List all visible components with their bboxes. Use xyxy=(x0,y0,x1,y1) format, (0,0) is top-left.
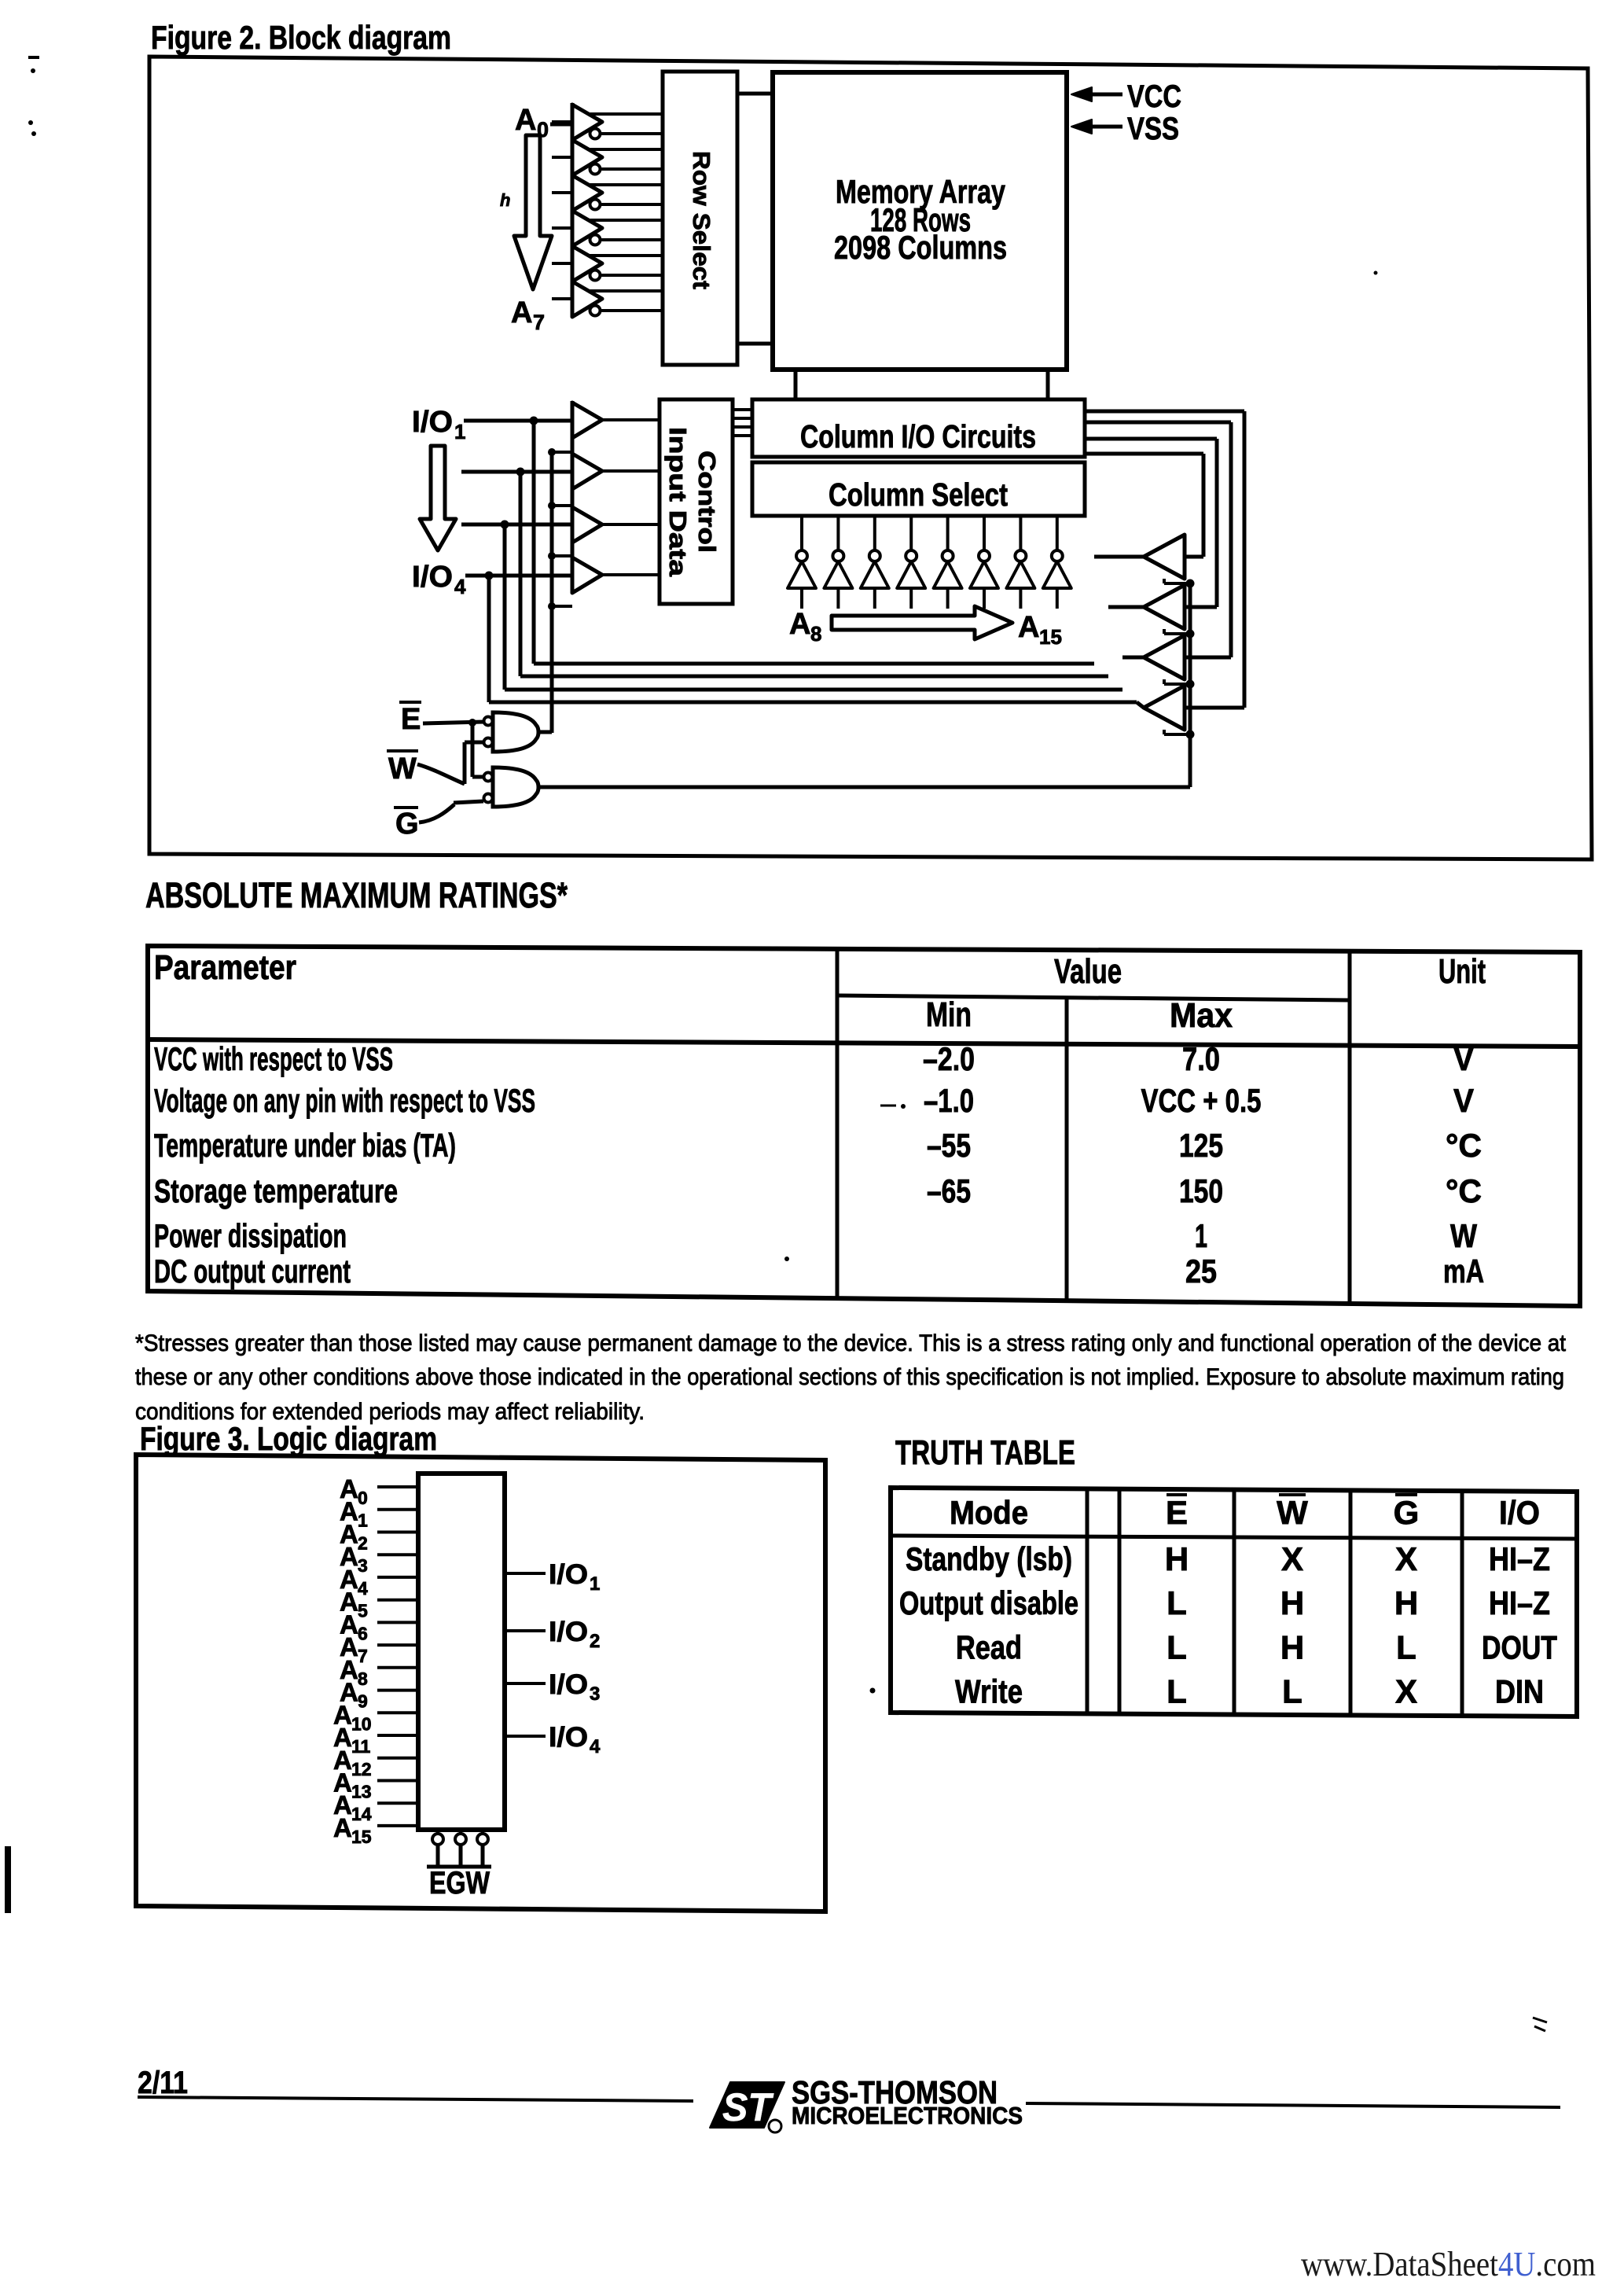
svg-text:°C: °C xyxy=(1446,1172,1482,1209)
svg-text:150: 150 xyxy=(1179,1172,1223,1209)
svg-text:10: 10 xyxy=(351,1713,372,1734)
svg-text:G: G xyxy=(395,808,419,841)
svg-text:W: W xyxy=(1450,1217,1477,1254)
svg-text:h: h xyxy=(500,190,510,210)
svg-text:L: L xyxy=(1167,1584,1187,1621)
svg-text:4: 4 xyxy=(590,1736,601,1757)
svg-text:Figure 3. Logic diagram: Figure 3. Logic diagram xyxy=(140,1420,437,1457)
svg-text:7: 7 xyxy=(358,1646,368,1666)
svg-text:I/O: I/O xyxy=(549,1559,588,1590)
svg-text:E: E xyxy=(401,703,421,736)
svg-text:Output disable: Output disable xyxy=(899,1584,1078,1621)
svg-text:I/O: I/O xyxy=(412,561,453,594)
svg-text:2/11: 2/11 xyxy=(138,2066,188,2100)
svg-text:ABSOLUTE MAXIMUM RATINGS*: ABSOLUTE MAXIMUM RATINGS* xyxy=(145,875,568,915)
svg-text:W: W xyxy=(388,752,417,786)
svg-text:EGW: EGW xyxy=(429,1866,490,1900)
svg-text:HI–Z: HI–Z xyxy=(1489,1540,1550,1577)
svg-text:2: 2 xyxy=(590,1631,600,1652)
svg-text:A: A xyxy=(511,296,532,329)
svg-text:Column I/O Circuits: Column I/O Circuits xyxy=(800,418,1036,454)
svg-text:Mode: Mode xyxy=(950,1494,1028,1531)
svg-text:L: L xyxy=(1396,1628,1416,1665)
svg-text:5: 5 xyxy=(358,1601,368,1621)
svg-text:HI–Z: HI–Z xyxy=(1489,1584,1550,1621)
svg-text:–1.0: –1.0 xyxy=(924,1082,974,1119)
svg-text:Figure 2. Block diagram: Figure 2. Block diagram xyxy=(151,19,451,56)
svg-text:Value: Value xyxy=(1054,952,1122,991)
svg-text:A: A xyxy=(789,608,810,641)
svg-text:G: G xyxy=(1394,1494,1420,1531)
svg-text:Control: Control xyxy=(693,451,721,553)
svg-text:H: H xyxy=(1165,1540,1189,1577)
svg-text:–55: –55 xyxy=(927,1127,971,1164)
svg-text:V: V xyxy=(1453,1082,1474,1119)
svg-text:2098 Columns: 2098 Columns xyxy=(834,229,1007,266)
svg-text:X: X xyxy=(1281,1540,1303,1577)
svg-text:Min: Min xyxy=(926,995,972,1034)
svg-text:11: 11 xyxy=(351,1736,371,1757)
svg-text:I/O: I/O xyxy=(549,1669,588,1700)
svg-text:7: 7 xyxy=(533,311,545,334)
svg-text:Voltage on any pin with respec: Voltage on any pin with respect to VSS xyxy=(154,1082,535,1119)
svg-text:E: E xyxy=(1166,1494,1188,1531)
svg-text:1: 1 xyxy=(358,1510,368,1531)
svg-text:Storage temperature: Storage temperature xyxy=(154,1172,398,1209)
svg-text:X: X xyxy=(1395,1673,1417,1710)
svg-text:I/O: I/O xyxy=(1499,1494,1540,1531)
svg-text:*Stresses greater than those l: *Stresses greater than those listed may … xyxy=(135,1330,1567,1356)
svg-text:H: H xyxy=(1280,1628,1304,1665)
svg-text:DOUT: DOUT xyxy=(1482,1628,1557,1665)
svg-text:Parameter: Parameter xyxy=(154,948,296,987)
svg-text:I/O: I/O xyxy=(549,1722,588,1753)
svg-text:Row Select: Row Select xyxy=(688,151,715,289)
svg-text:I/O: I/O xyxy=(549,1617,588,1647)
svg-text:L: L xyxy=(1167,1673,1187,1710)
svg-text:–2.0: –2.0 xyxy=(923,1040,975,1077)
svg-text:9: 9 xyxy=(358,1691,368,1712)
svg-text:VSS: VSS xyxy=(1127,112,1179,146)
svg-text:1: 1 xyxy=(590,1573,600,1595)
svg-text:Column Select: Column Select xyxy=(829,476,1008,513)
svg-text:°C: °C xyxy=(1446,1127,1482,1164)
svg-text:TRUTH TABLE: TRUTH TABLE xyxy=(895,1433,1075,1472)
svg-text:W: W xyxy=(1277,1494,1308,1531)
svg-text:25: 25 xyxy=(1185,1253,1217,1290)
svg-text:DC output current: DC output current xyxy=(154,1253,351,1290)
svg-text:Unit: Unit xyxy=(1438,952,1486,991)
svg-text:H: H xyxy=(1394,1584,1418,1621)
svg-text:1: 1 xyxy=(454,420,465,443)
svg-text:2: 2 xyxy=(358,1533,368,1553)
svg-text:H: H xyxy=(1280,1584,1304,1621)
svg-text:4: 4 xyxy=(454,575,466,598)
svg-text:L: L xyxy=(1282,1673,1303,1710)
svg-text:A: A xyxy=(1018,611,1039,644)
svg-text:15: 15 xyxy=(1039,625,1062,649)
svg-text:VCC: VCC xyxy=(1127,79,1181,114)
svg-text:these or any other conditions: these or any other conditions above thos… xyxy=(135,1364,1564,1390)
svg-text:ST: ST xyxy=(722,2085,774,2129)
svg-text:A: A xyxy=(515,104,536,137)
svg-text:DIN: DIN xyxy=(1495,1673,1544,1710)
svg-text:VCC + 0.5: VCC + 0.5 xyxy=(1141,1082,1262,1119)
svg-text:Max: Max xyxy=(1170,996,1233,1035)
svg-text:12: 12 xyxy=(351,1759,372,1779)
svg-text:Standby (lsb): Standby (lsb) xyxy=(906,1540,1072,1577)
svg-text:www.DataSheet4U.com: www.DataSheet4U.com xyxy=(1301,2245,1596,2283)
svg-text:8: 8 xyxy=(358,1669,368,1689)
svg-text:15: 15 xyxy=(351,1827,372,1847)
svg-text:I/O: I/O xyxy=(412,406,453,439)
svg-text:Read: Read xyxy=(956,1628,1022,1665)
svg-text:4: 4 xyxy=(358,1578,368,1599)
svg-text:Input Data: Input Data xyxy=(664,427,692,577)
svg-text:7.0: 7.0 xyxy=(1182,1040,1220,1077)
svg-text:Temperature under bias (TA): Temperature under bias (TA) xyxy=(154,1127,456,1164)
svg-text:Power dissipation: Power dissipation xyxy=(154,1217,347,1254)
svg-text:L: L xyxy=(1167,1628,1187,1665)
svg-text:8: 8 xyxy=(810,622,821,646)
svg-text:X: X xyxy=(1395,1540,1417,1577)
svg-text:V: V xyxy=(1453,1040,1474,1077)
svg-text:Write: Write xyxy=(955,1673,1023,1710)
svg-text:1: 1 xyxy=(1195,1217,1207,1254)
svg-text:125: 125 xyxy=(1179,1127,1223,1164)
svg-text:–65: –65 xyxy=(927,1172,971,1209)
svg-text:mA: mA xyxy=(1443,1253,1484,1290)
svg-text:3: 3 xyxy=(358,1555,368,1576)
svg-text:3: 3 xyxy=(590,1683,600,1705)
svg-text:0: 0 xyxy=(358,1488,368,1508)
svg-text:6: 6 xyxy=(358,1623,368,1643)
svg-text:14: 14 xyxy=(351,1804,372,1824)
svg-text:MICROELECTRONICS: MICROELECTRONICS xyxy=(792,2102,1023,2129)
svg-text:VCC with respect to VSS: VCC with respect to VSS xyxy=(154,1040,393,1077)
svg-text:13: 13 xyxy=(351,1781,372,1801)
svg-text:A: A xyxy=(333,1813,352,1842)
